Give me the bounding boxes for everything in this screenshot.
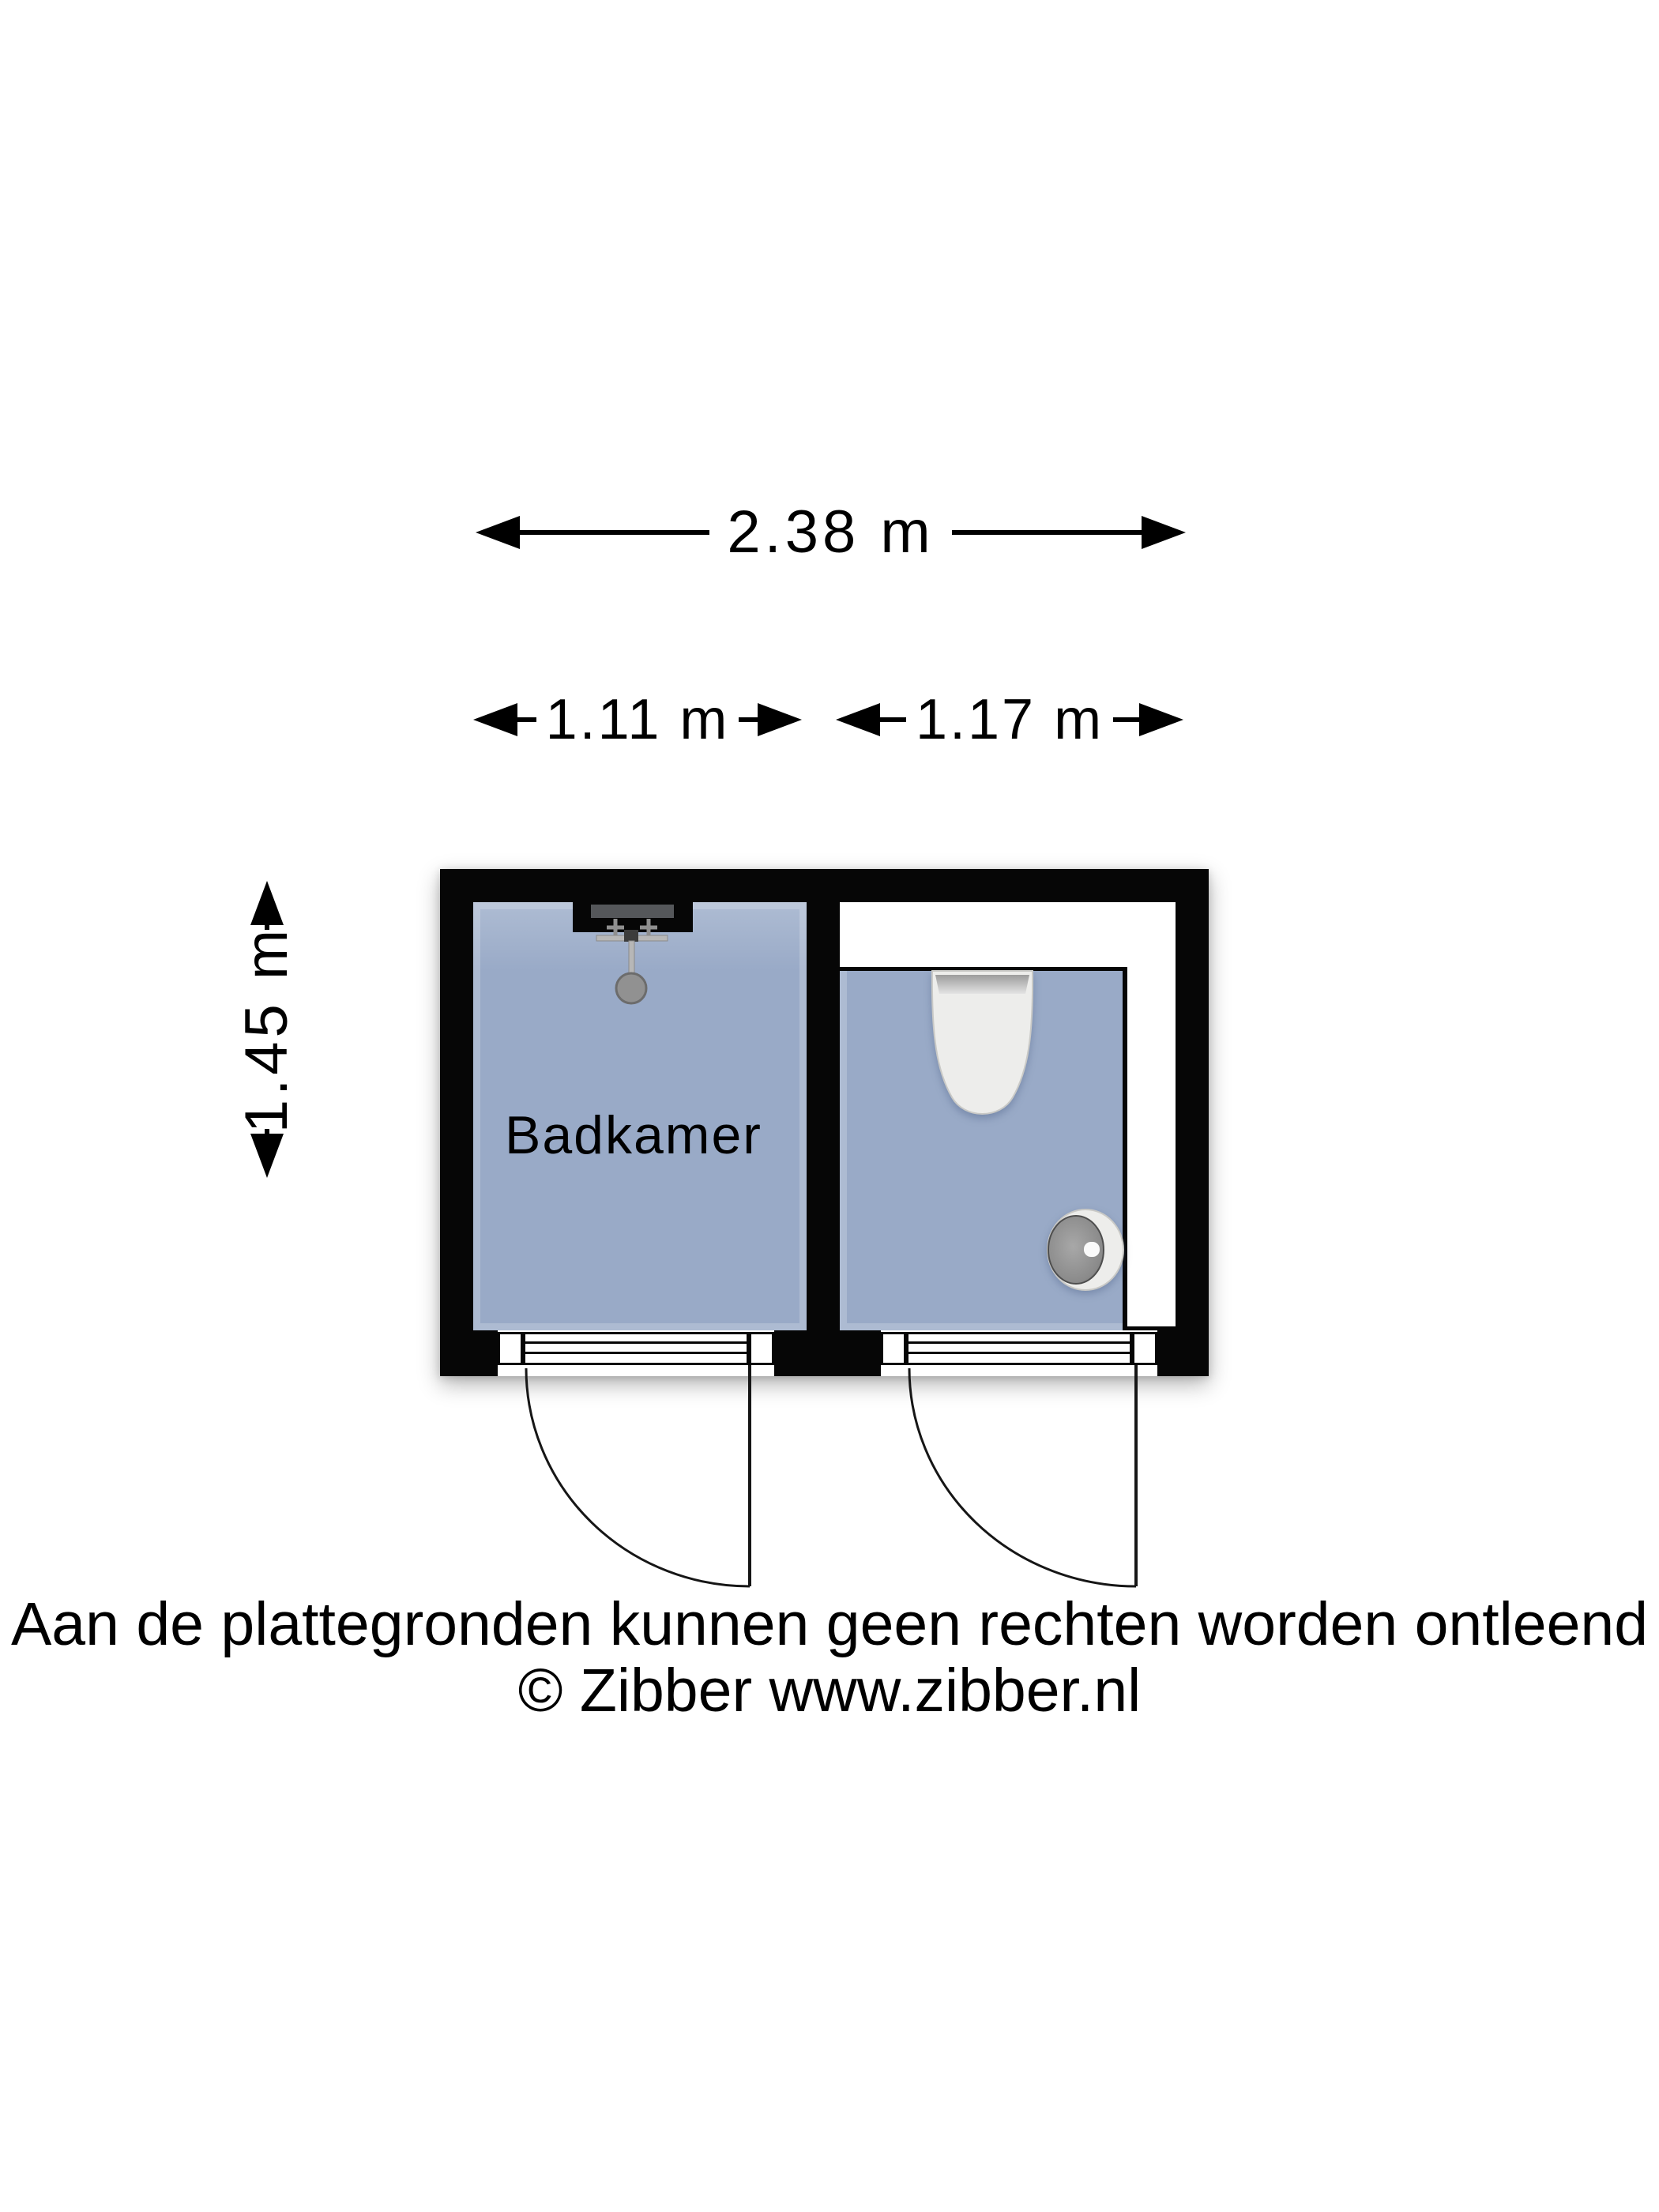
arrowhead-right-icon (1139, 703, 1183, 736)
wall-top (440, 869, 1209, 902)
wall-bottom-right (1157, 1330, 1209, 1376)
dimension-total-width: 2.38 m (476, 495, 1186, 570)
door-jamb (881, 1332, 906, 1365)
dimension-line (520, 530, 709, 535)
threshold-line (525, 1341, 747, 1344)
left-swing-door (526, 1365, 750, 1586)
room-label-badkamer: Badkamer (505, 1108, 762, 1162)
wall-right (1176, 869, 1209, 1376)
arrowhead-down-icon (250, 1134, 284, 1178)
dimension-left-room-width-label: 1.11 m (536, 691, 739, 748)
arrowhead-right-icon (758, 703, 802, 736)
dimension-right-room-width-label: 1.17 m (906, 691, 1113, 748)
shower-niche-panel (591, 905, 674, 918)
arrowhead-up-icon (250, 881, 284, 925)
floorplan-page: { "dimensions": { "total_width": "2.38 m… (0, 0, 1659, 2212)
door-jamb (1132, 1332, 1157, 1365)
arrowhead-left-icon (476, 516, 520, 549)
arrowhead-right-icon (1142, 516, 1186, 549)
cistern-shelf (840, 902, 1176, 970)
dimension-left-room-width: 1.11 m (473, 682, 802, 758)
door-threshold-left (523, 1332, 749, 1365)
threshold-line (908, 1352, 1130, 1354)
dimension-height-label: 1.45 m (237, 926, 297, 1133)
cistern-shelf-edge (840, 967, 1123, 971)
right-swing-door (909, 1365, 1136, 1586)
floorplan-drawing: Badkamer (440, 869, 1209, 1376)
arrowhead-left-icon (473, 703, 517, 736)
dimension-height-label-wrap: 1.45 m (229, 930, 305, 1129)
threshold-line (908, 1341, 1130, 1344)
dimension-total-width-label: 2.38 m (709, 502, 951, 562)
dimension-line (952, 530, 1142, 535)
dimension-right-room-width: 1.17 m (836, 682, 1183, 758)
wall-bottom-left (440, 1330, 498, 1376)
arrowhead-left-icon (836, 703, 880, 736)
disclaimer-text: Aan de plattegronden kunnen geen rechten… (0, 1591, 1659, 1657)
duct-strip (1123, 967, 1176, 1330)
copyright-text: © Zibber www.zibber.nl (0, 1657, 1659, 1724)
threshold-line (525, 1352, 747, 1354)
wall-bottom-center (774, 1330, 881, 1376)
wall-left (440, 869, 473, 1376)
door-threshold-right (906, 1332, 1132, 1365)
dimension-line (739, 717, 758, 722)
dimension-line (1113, 717, 1139, 722)
dimension-line (517, 717, 536, 722)
dimension-line (880, 717, 906, 722)
dimension-height: 1.45 m (229, 881, 305, 1178)
wall-divider (807, 902, 840, 1330)
door-jamb (498, 1332, 523, 1365)
door-jamb (749, 1332, 774, 1365)
